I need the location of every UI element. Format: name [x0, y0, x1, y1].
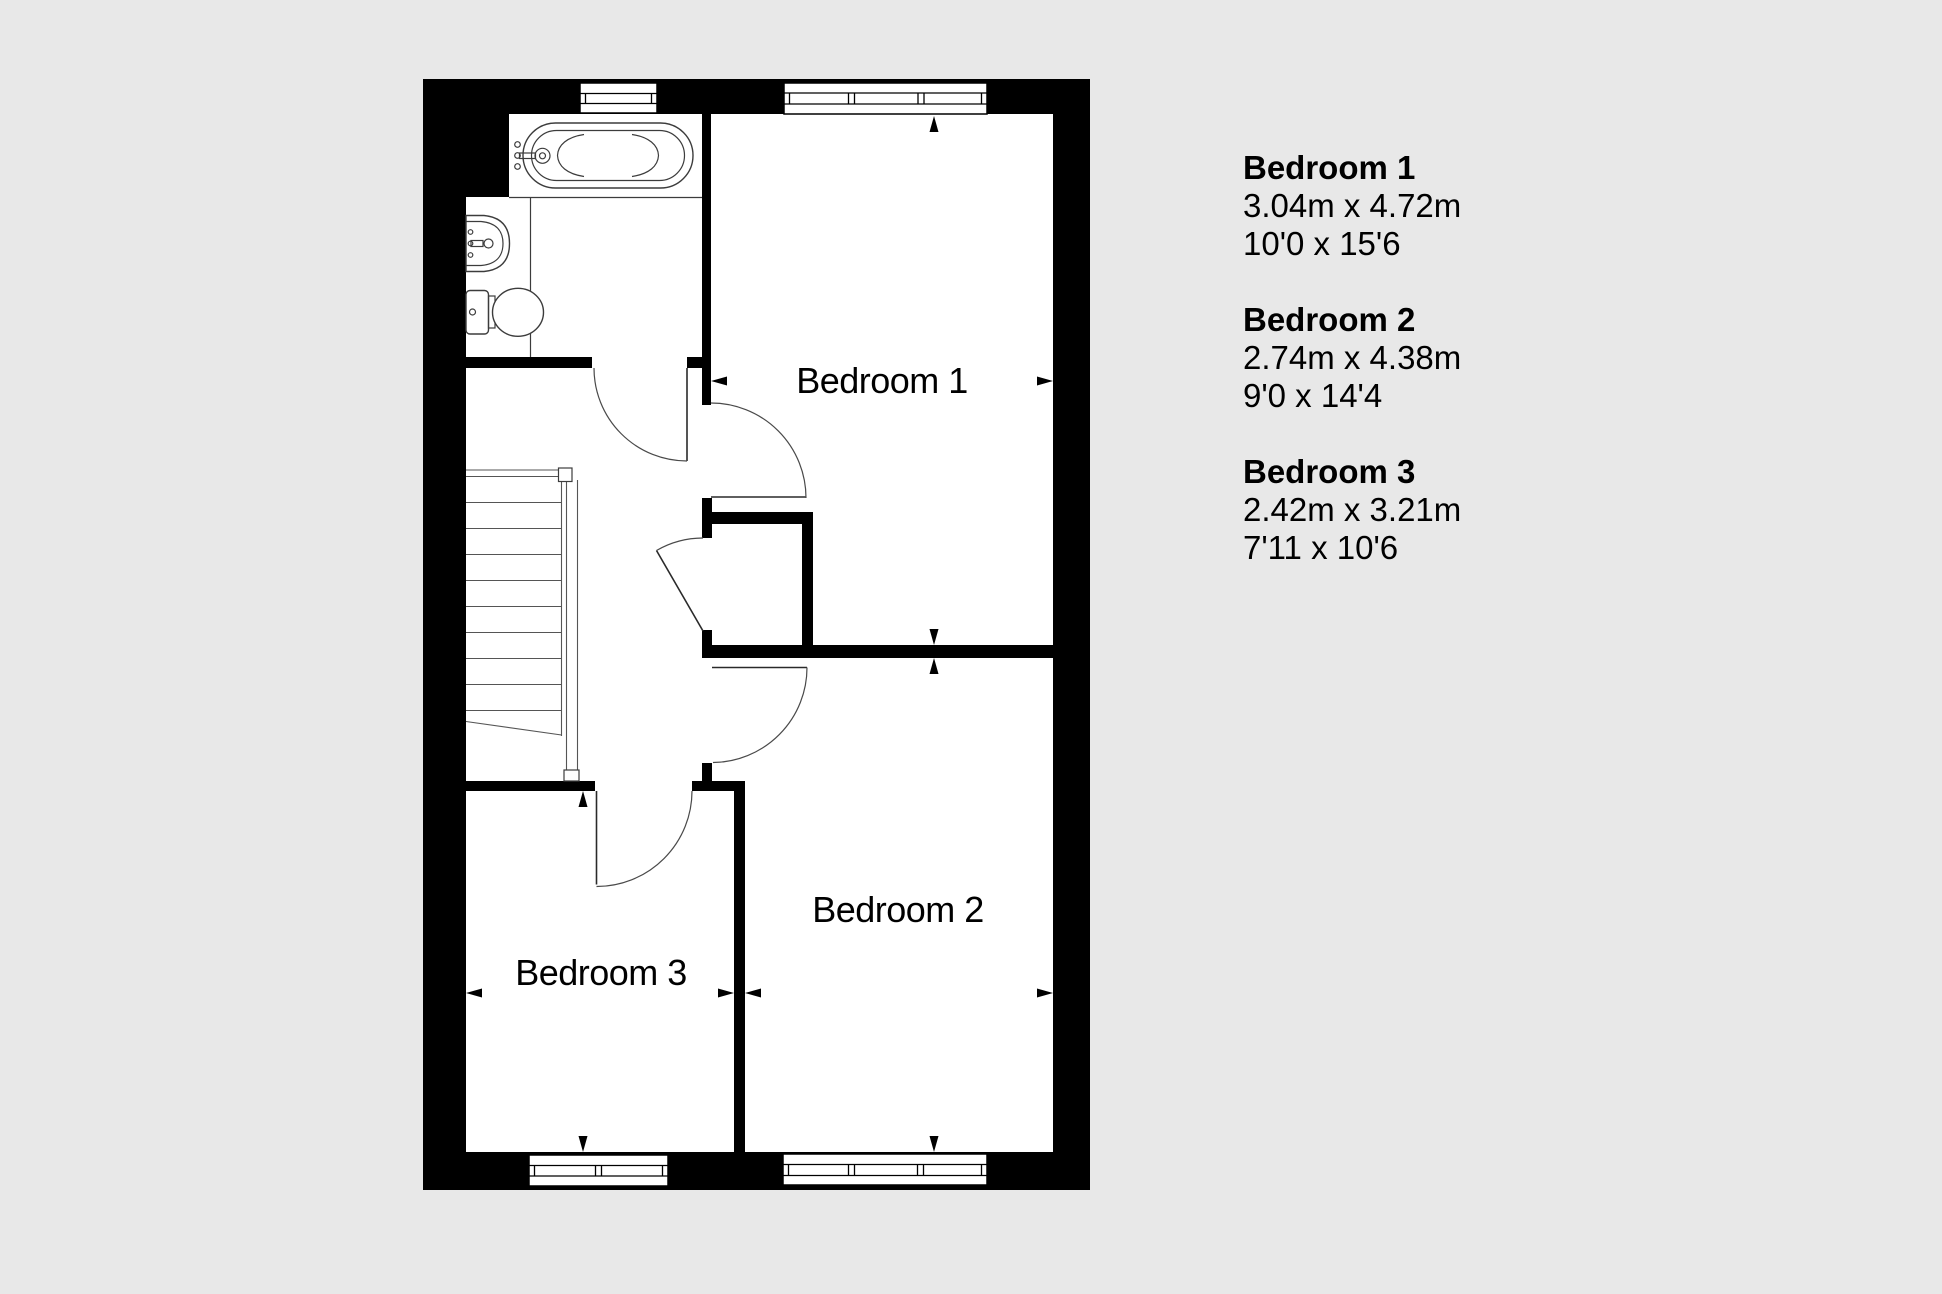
- wall-landing-bedroom3-a: [466, 781, 595, 791]
- wall-bottom: [423, 1152, 1090, 1190]
- wall-cupboard-stub-top: [702, 498, 712, 538]
- floor-slab: [423, 79, 1090, 1190]
- legend-bedroom2-metric: 2.74m x 4.38m: [1243, 339, 1461, 377]
- bedroom2-window: [783, 1154, 987, 1185]
- legend-bedroom2-imperial: 9'0 x 14'4: [1243, 377, 1461, 415]
- bedroom3-window: [529, 1155, 668, 1186]
- legend-bedroom3-imperial: 7'11 x 10'6: [1243, 529, 1461, 567]
- wall-bedroom1-bedroom2-divider: [702, 645, 1053, 658]
- legend-bedroom1-name: Bedroom 1: [1243, 149, 1461, 187]
- stair-newel-post-bottom: [564, 770, 579, 781]
- wall-bedroom2-bedroom3-divider: [734, 781, 745, 1152]
- wall-bathroom-south-a: [466, 357, 592, 368]
- stair-newel-post-top: [559, 468, 573, 482]
- legend-bedroom3: Bedroom 3 2.42m x 3.21m 7'11 x 10'6: [1243, 453, 1461, 567]
- room-dimensions-legend: Bedroom 1 3.04m x 4.72m 10'0 x 15'6 Bedr…: [1243, 149, 1461, 605]
- wall-cupboard-right: [802, 512, 813, 658]
- wall-right: [1053, 79, 1090, 1190]
- bathtub-icon: [515, 123, 693, 188]
- legend-bedroom2-name: Bedroom 2: [1243, 301, 1461, 339]
- bathroom-window: [580, 83, 657, 113]
- sink-icon: [466, 216, 510, 272]
- wall-central-upper: [702, 114, 711, 405]
- legend-bedroom3-name: Bedroom 3: [1243, 453, 1461, 491]
- bedroom3-label: Bedroom 3: [515, 952, 687, 993]
- wall-top: [423, 79, 1090, 114]
- wall-bathroom-corner: [466, 79, 509, 197]
- floor-plan: Bedroom 1 Bedroom 2 Bedroom 3: [0, 0, 1942, 1294]
- legend-bedroom3-metric: 2.42m x 3.21m: [1243, 491, 1461, 529]
- bedroom1-window: [784, 83, 987, 114]
- floorplan-page: Bedroom 1 Bedroom 2 Bedroom 3 Bedroom 1 …: [0, 0, 1942, 1294]
- bedroom2-label: Bedroom 2: [812, 889, 984, 930]
- legend-bedroom1: Bedroom 1 3.04m x 4.72m 10'0 x 15'6: [1243, 149, 1461, 263]
- legend-bedroom2: Bedroom 2 2.74m x 4.38m 9'0 x 14'4: [1243, 301, 1461, 415]
- legend-bedroom1-imperial: 10'0 x 15'6: [1243, 225, 1461, 263]
- toilet-icon: [466, 288, 544, 336]
- legend-bedroom1-metric: 3.04m x 4.72m: [1243, 187, 1461, 225]
- wall-left: [423, 79, 466, 1190]
- bedroom1-label: Bedroom 1: [796, 360, 968, 401]
- wall-cupboard-top: [712, 512, 813, 524]
